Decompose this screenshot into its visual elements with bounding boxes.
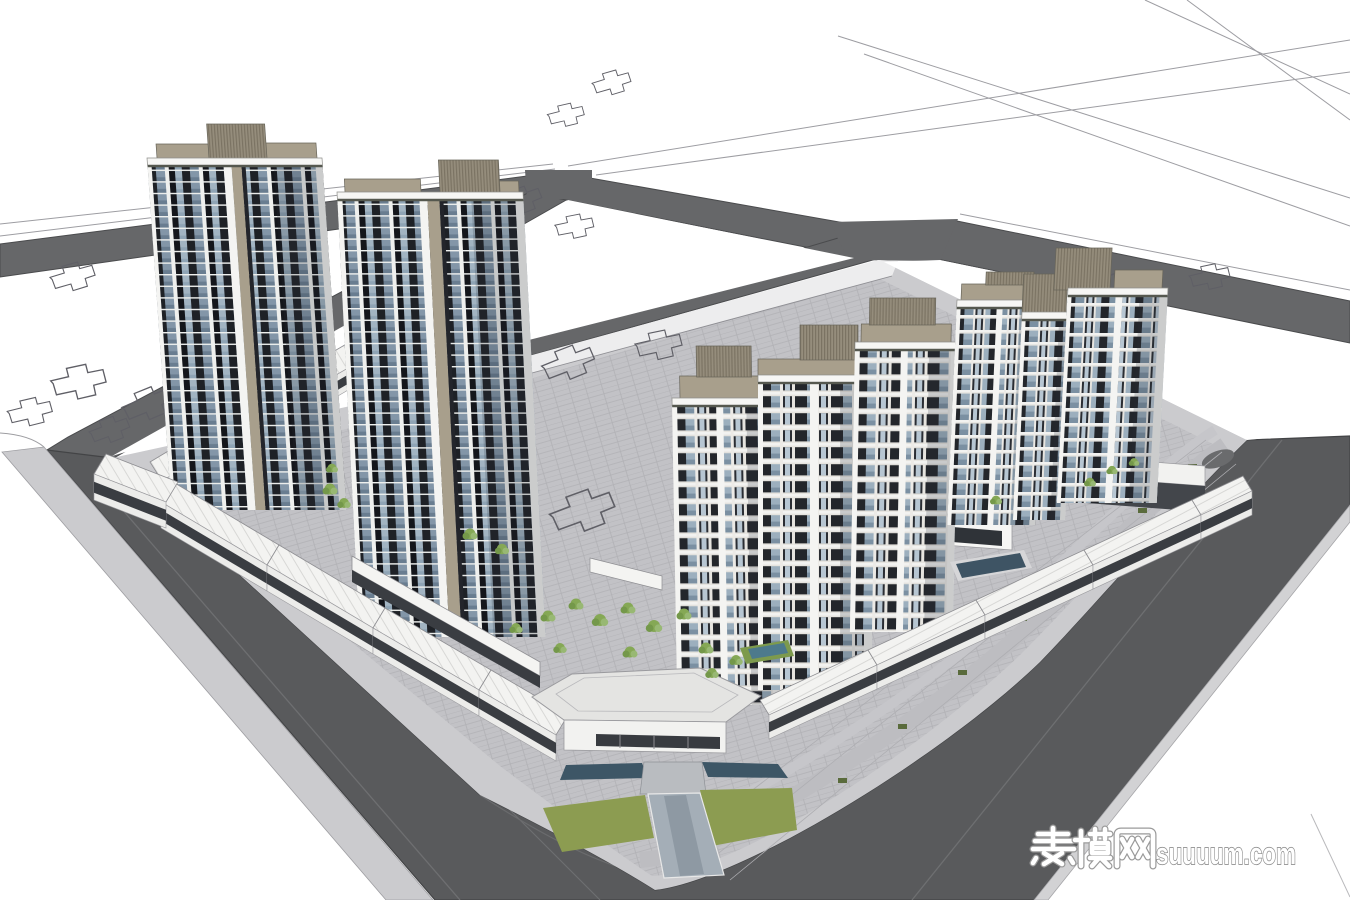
svg-text:suuuum.com: suuuum.com (1156, 836, 1296, 871)
